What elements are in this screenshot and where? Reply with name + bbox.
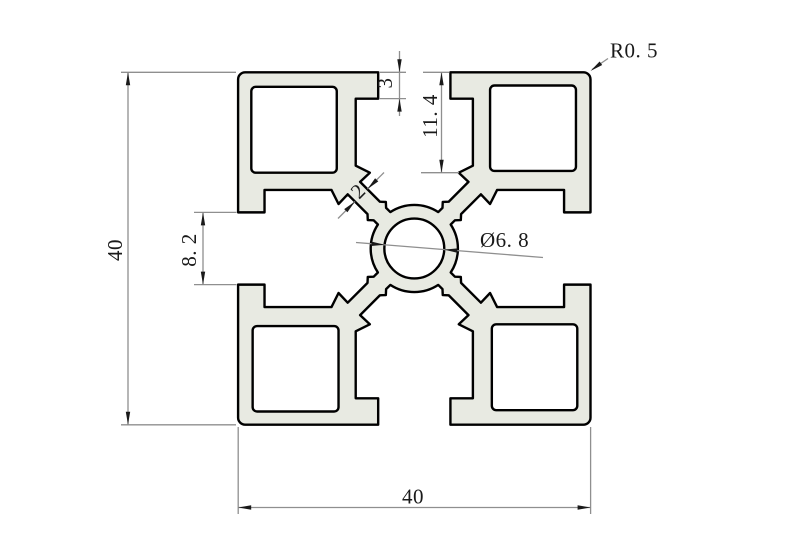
arrowhead: [439, 72, 443, 85]
dim-overall-width: 40: [238, 427, 590, 514]
dimension-label: 40: [402, 485, 424, 509]
dim-overall-height: 40: [103, 72, 236, 425]
dimension-label: 40: [103, 239, 127, 261]
dim-slot-opening: 8. 2: [177, 212, 237, 284]
arrowhead: [201, 212, 205, 225]
arrowhead: [368, 178, 379, 189]
dimension-label: R0. 5: [610, 39, 658, 63]
arrowhead: [397, 99, 401, 112]
arrowhead: [126, 412, 130, 425]
arrowhead: [591, 62, 603, 72]
dimension-label: 8. 2: [177, 233, 201, 267]
dim-corner-radius: R0. 5: [591, 39, 659, 72]
arrowhead: [201, 272, 205, 285]
drawing-sheet: 40 8. 2 3 11. 4 2 Ø6: [0, 0, 804, 557]
dimension-label: Ø6. 8: [480, 228, 529, 252]
dim-lip-height: 3: [373, 51, 406, 116]
dimension-label: 3: [373, 78, 397, 89]
arrowhead: [344, 202, 355, 213]
dimension-label: 11. 4: [418, 94, 442, 138]
arrowhead: [439, 160, 443, 173]
drawing-canvas: 40 8. 2 3 11. 4 2 Ø6: [0, 0, 804, 557]
arrowhead: [238, 505, 251, 509]
arrowhead: [578, 505, 591, 509]
arrowhead: [126, 72, 130, 85]
profile-outline: [238, 72, 590, 424]
arrowhead: [397, 59, 401, 72]
